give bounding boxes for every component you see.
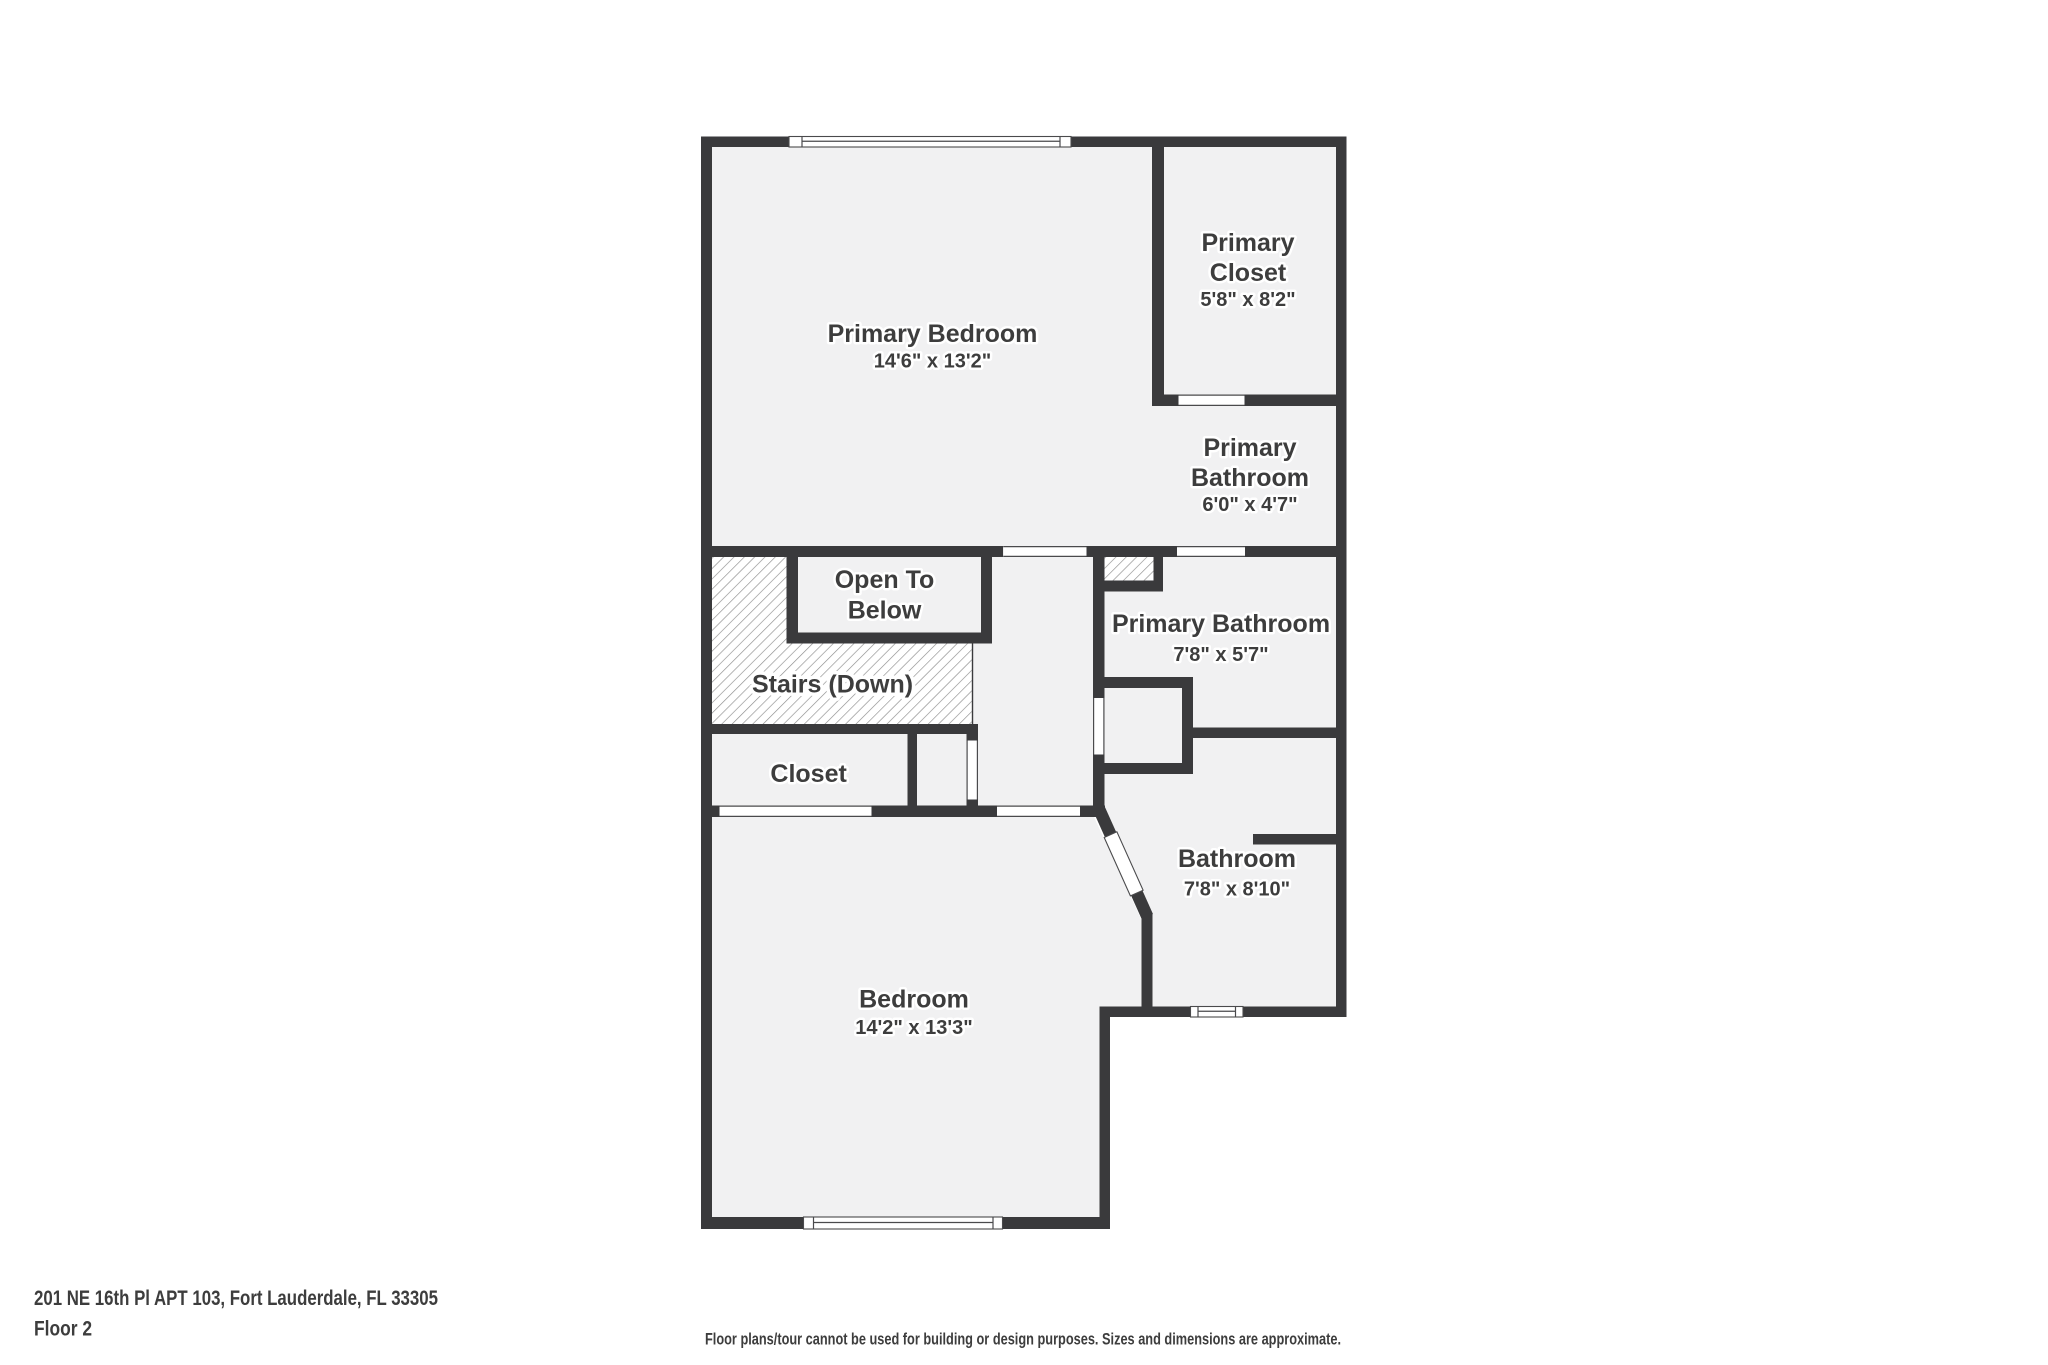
svg-text:14'6" x 13'2": 14'6" x 13'2" (874, 351, 991, 373)
svg-text:14'2" x 13'3": 14'2" x 13'3" (855, 1017, 972, 1039)
svg-text:Closet: Closet (1210, 259, 1287, 287)
svg-text:Primary: Primary (1203, 434, 1296, 462)
svg-text:6'0" x 4'7": 6'0" x 4'7" (1202, 494, 1297, 516)
svg-text:Stairs (Down): Stairs (Down) (752, 671, 913, 699)
svg-text:Below: Below (848, 596, 922, 624)
svg-text:7'8" x 8'10": 7'8" x 8'10" (1184, 879, 1290, 901)
svg-text:201 NE 16th Pl APT 103, Fort L: 201 NE 16th Pl APT 103, Fort Lauderdale,… (34, 1287, 438, 1310)
svg-text:Bathroom: Bathroom (1178, 845, 1296, 873)
svg-text:Primary: Primary (1201, 229, 1294, 257)
svg-text:Bedroom: Bedroom (859, 985, 969, 1013)
svg-text:Closet: Closet (770, 760, 847, 788)
svg-text:Floor 2: Floor 2 (34, 1318, 92, 1341)
svg-text:Open To: Open To (835, 566, 935, 594)
svg-text:Primary Bathroom: Primary Bathroom (1112, 610, 1330, 638)
svg-text:Floor plans/tour cannot be use: Floor plans/tour cannot be used for buil… (705, 1331, 1341, 1349)
svg-text:Primary Bedroom: Primary Bedroom (828, 320, 1038, 348)
svg-text:Bathroom: Bathroom (1191, 464, 1309, 492)
svg-text:5'8" x 8'2": 5'8" x 8'2" (1200, 289, 1295, 311)
svg-text:7'8" x 5'7": 7'8" x 5'7" (1173, 644, 1268, 666)
